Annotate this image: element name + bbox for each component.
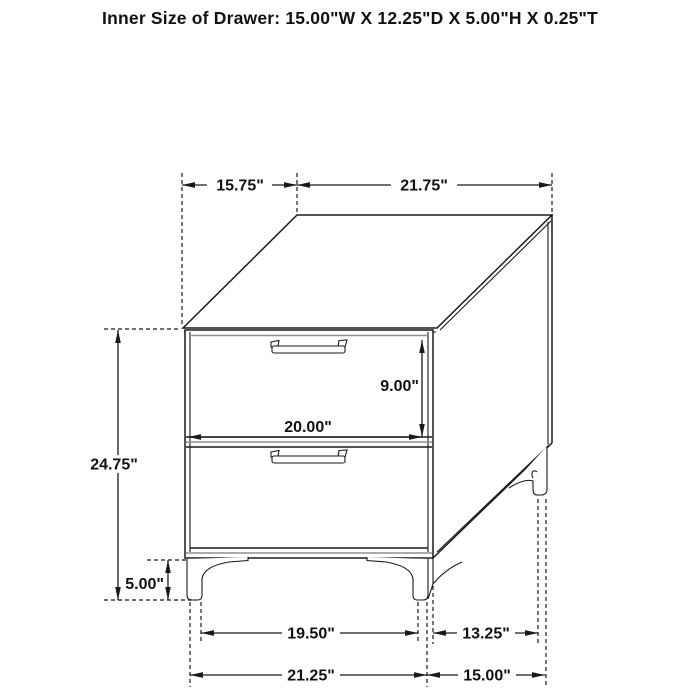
nightstand xyxy=(183,215,552,600)
dim-overall-height: 24.75" xyxy=(85,330,143,600)
dim-leg-height-label: 5.00" xyxy=(125,576,164,593)
dim-top-depth: 15.75" xyxy=(182,176,297,195)
dim-drawer-width-label: 20.00" xyxy=(284,419,332,436)
dim-overall-height-label: 24.75" xyxy=(90,457,138,474)
dim-front-overall-width: 21.25" xyxy=(190,666,427,685)
technical-drawing: 15.75" 21.75" 24.75" 5.00" 9.00" xyxy=(0,0,700,700)
dim-front-overall-width-label: 21.25" xyxy=(287,668,335,685)
dim-top-width-label: 21.75" xyxy=(400,178,448,195)
diagram-canvas: Inner Size of Drawer: 15.00"W X 12.25"D … xyxy=(0,0,700,700)
dim-drawer-height-label: 9.00" xyxy=(380,378,419,395)
dim-top-width: 21.75" xyxy=(297,176,552,195)
front-panel xyxy=(185,330,433,558)
dim-side-feet-span: 13.25" xyxy=(433,624,538,643)
dim-front-feet-inner-span-label: 19.50" xyxy=(287,626,335,643)
leg-front-left xyxy=(187,557,248,600)
dim-side-feet-span-label: 13.25" xyxy=(462,626,510,643)
drawing-title: Inner Size of Drawer: 15.00"W X 12.25"D … xyxy=(0,8,700,29)
leg-front-right xyxy=(367,557,462,600)
dim-front-feet-inner-span: 19.50" xyxy=(201,624,418,643)
dim-top-depth-label: 15.75" xyxy=(216,178,264,195)
dim-leg-height: 5.00" xyxy=(125,560,168,600)
dim-side-overall-depth-label: 15.00" xyxy=(463,668,511,685)
dim-side-overall-depth: 15.00" xyxy=(427,666,545,685)
